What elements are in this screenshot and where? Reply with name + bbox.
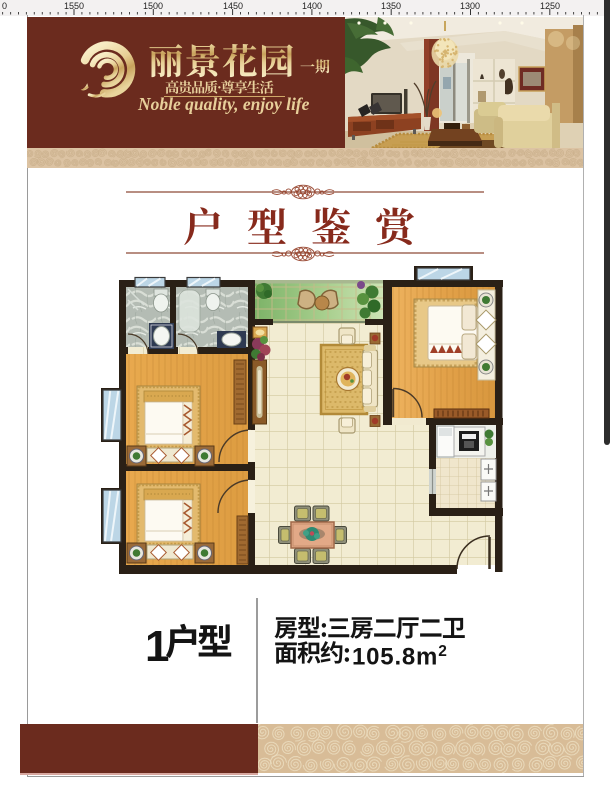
svg-text:1: 1: [145, 622, 169, 671]
svg-text:Noble quality, enjoy life: Noble quality, enjoy life: [137, 94, 310, 114]
svg-text:105.8m2: 105.8m2: [352, 643, 448, 671]
svg-text:0: 0: [2, 1, 7, 11]
